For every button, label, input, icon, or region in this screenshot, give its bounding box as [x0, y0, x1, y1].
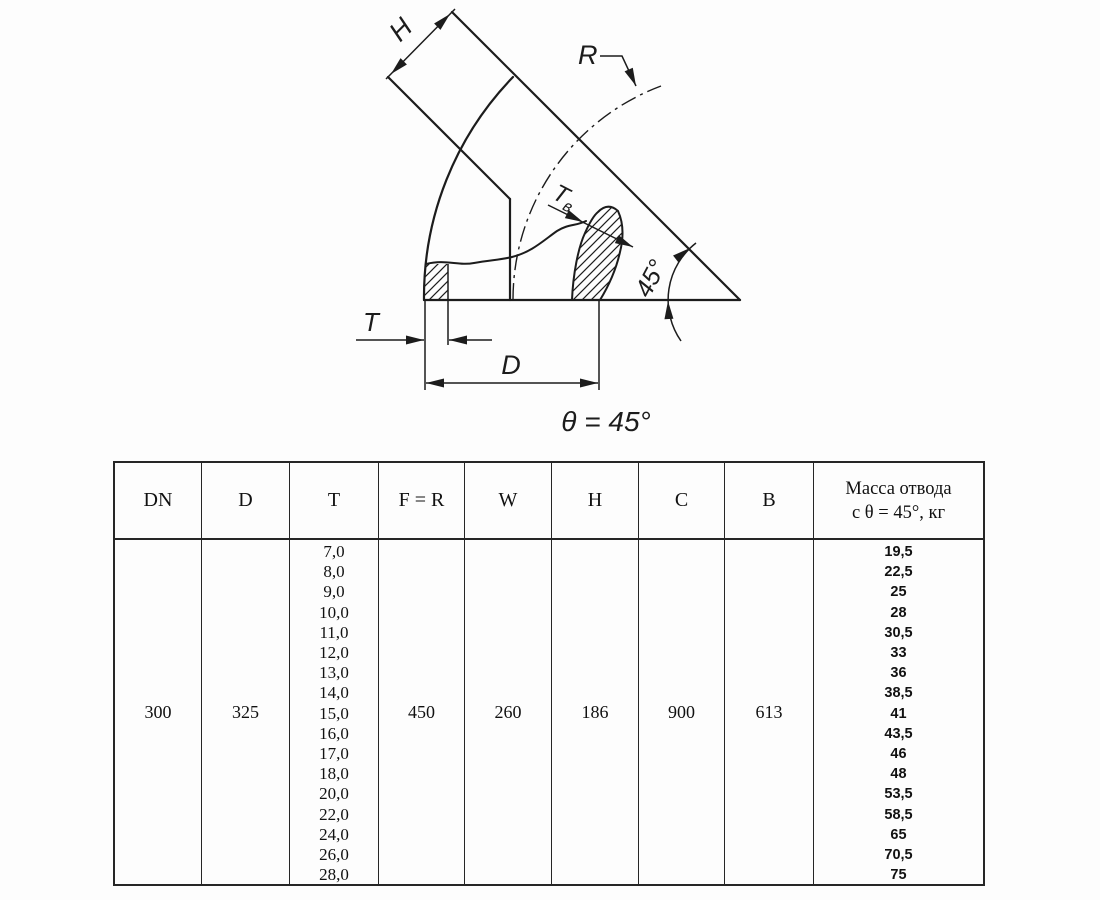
header-w: W — [465, 463, 552, 540]
header-d: D — [202, 463, 290, 540]
left-wall-section — [425, 264, 448, 300]
header-mass-line1: Масса отвода — [845, 477, 951, 501]
spec-table: DN D T F = R W H C B Масса отвода с θ = … — [113, 461, 985, 886]
label-r: R — [578, 40, 598, 70]
cell-mass-values: 19,522,5252830,5333638,54143,5464853,558… — [814, 540, 983, 885]
cell-d: 325 — [202, 540, 290, 885]
header-h: H — [552, 463, 639, 540]
arrowheads — [388, 11, 693, 388]
dimension-lines — [356, 9, 696, 390]
label-h: H — [383, 12, 418, 47]
page: H R Tв T D 45° θ = 45° DN D T F = R W H … — [0, 0, 1100, 900]
header-b: B — [725, 463, 814, 540]
cell-t-values: 7,08,09,010,011,012,013,014,015,016,017,… — [290, 540, 379, 885]
header-mass: Масса отвода с θ = 45°, кг — [814, 463, 983, 540]
theta-caption: θ = 45° — [561, 406, 650, 437]
header-dn: DN — [115, 463, 202, 540]
inner-edge-line — [388, 77, 510, 199]
label-angle-45: 45° — [630, 255, 672, 302]
header-t: T — [290, 463, 379, 540]
break-wavy-line — [426, 221, 586, 264]
cell-w: 260 — [465, 540, 552, 885]
label-t: T — [363, 307, 381, 337]
cell-f-r: 450 — [379, 540, 465, 885]
header-c: C — [639, 463, 725, 540]
header-f-r: F = R — [379, 463, 465, 540]
header-mass-line2: с θ = 45°, кг — [845, 501, 951, 525]
cell-b: 613 — [725, 540, 814, 885]
cell-h: 186 — [552, 540, 639, 885]
cell-dn: 300 — [115, 540, 202, 885]
cell-c: 900 — [639, 540, 725, 885]
label-d: D — [501, 350, 521, 380]
label-tv: Tв — [547, 179, 581, 216]
elbow-drawing: H R Tв T D 45° θ = 45° — [0, 0, 1100, 456]
